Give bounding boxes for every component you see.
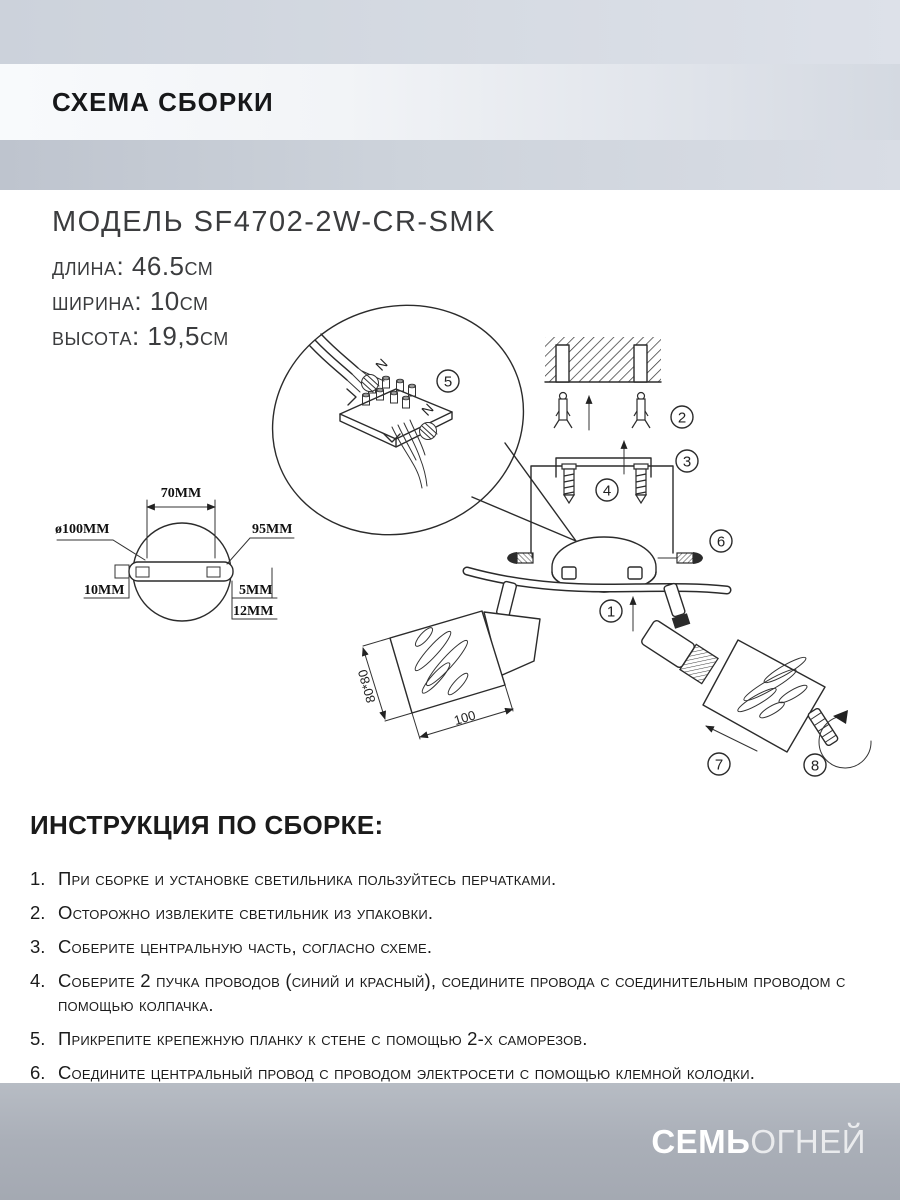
dim-edge-depth: 12MM — [233, 604, 273, 619]
left-shade: 80*80 100 — [355, 611, 540, 739]
instructions-list: 1. При сборке и установке светильника по… — [30, 867, 870, 1085]
assembly-sheet-page: СХЕМА СБОРКИ МОДЕЛЬ SF4702-2W-CR-SMK дли… — [0, 0, 900, 1200]
instruction-item: 2. Осторожно извлеките светильник из упа… — [30, 901, 870, 925]
footer-banner: СЕМЬОГНЕЙ — [0, 1083, 900, 1200]
dim-shade-width: 100 — [452, 707, 477, 728]
svg-text:1: 1 — [607, 603, 615, 620]
wire-cap-icon — [420, 423, 438, 440]
svg-text:3: 3 — [683, 453, 691, 470]
item-number: 5. — [30, 1027, 58, 1051]
bracket-screw-icon — [634, 464, 648, 503]
callout-1: 1 — [600, 600, 622, 622]
instruction-item: 3. Соберите центральную часть, согласно … — [30, 935, 870, 959]
canopy-side-screw-icon — [677, 552, 703, 564]
item-number: 4. — [30, 969, 58, 1017]
item-text: Прикрепите крепежную планку к стене с по… — [58, 1027, 588, 1051]
assembly-diagram: N N 5 70MM ø100MM 95MM — [0, 290, 900, 790]
svg-text:8: 8 — [811, 757, 819, 774]
dim-plate-diameter: ø100MM — [55, 522, 109, 537]
dim-left-offset: 10MM — [84, 583, 124, 598]
mounting-bracket: 4 3 — [531, 441, 698, 553]
item-number: 6. — [30, 1061, 58, 1085]
instruction-item: 6. Соедините центральный провод с провод… — [30, 1061, 870, 1085]
dim-right-offset: 5MM — [239, 583, 272, 598]
page-title: СХЕМА СБОРКИ — [52, 87, 274, 118]
header-band-top — [0, 0, 900, 64]
item-text: Соберите 2 пучка проводов (синий и красн… — [58, 969, 870, 1017]
instruction-item: 1. При сборке и установке светильника по… — [30, 867, 870, 891]
header-band-bottom — [0, 140, 900, 190]
callout-4: 4 — [596, 479, 618, 501]
right-shade — [703, 640, 825, 752]
item-number: 1. — [30, 867, 58, 891]
callout-8: 8 — [804, 754, 826, 776]
wall-anchor-icon — [554, 393, 572, 429]
instructions-heading: ИНСТРУКЦИЯ ПО СБОРКЕ: — [30, 810, 870, 841]
item-text: Соедините центральный провод с проводом … — [58, 1061, 755, 1085]
brand-bold: СЕМЬ — [651, 1123, 750, 1160]
item-number: 2. — [30, 901, 58, 925]
instruction-item: 5. Прикрепите крепежную планку к стене с… — [30, 1027, 870, 1051]
svg-text:6: 6 — [717, 533, 725, 550]
model-spec-length: длина: 46.5см — [52, 249, 496, 284]
wall-anchor-icon — [632, 393, 650, 429]
svg-text:2: 2 — [678, 409, 686, 426]
header-banner: СХЕМА СБОРКИ — [0, 0, 900, 190]
wire-label-n-top: N — [372, 355, 390, 373]
callout-5: 5 — [437, 370, 459, 392]
instruction-item: 4. Соберите 2 пучка проводов (синий и кр… — [30, 969, 870, 1017]
header-title-strip: СХЕМА СБОРКИ — [0, 64, 900, 140]
assembly-diagram-svg: N N 5 70MM ø100MM 95MM — [0, 290, 900, 790]
svg-text:7: 7 — [715, 756, 723, 773]
shade-ring — [807, 708, 839, 747]
rotate-arrow-icon — [833, 710, 848, 724]
bracket-screw-icon — [562, 464, 576, 503]
dim-hole-spacing: 70MM — [161, 486, 201, 501]
canopy-side-screw-icon — [507, 552, 533, 564]
callout-6: 6 — [710, 530, 732, 552]
callout-7: 7 — [708, 753, 730, 775]
right-lamp-head: 7 8 — [640, 619, 871, 776]
svg-text:5: 5 — [444, 373, 452, 390]
svg-text:4: 4 — [603, 482, 611, 499]
item-text: Соберите центральную часть, согласно схе… — [58, 935, 432, 959]
mount-plate-detail: 70MM ø100MM 95MM 10MM 5MM 12MM — [55, 486, 294, 621]
item-text: При сборке и установке светильника польз… — [58, 867, 556, 891]
instructions-section: ИНСТРУКЦИЯ ПО СБОРКЕ: 1. При сборке и ус… — [30, 810, 870, 1095]
model-name: МОДЕЛЬ SF4702-2W-CR-SMK — [52, 206, 496, 239]
callout-3: 3 — [676, 450, 698, 472]
brand-light: ОГНЕЙ — [750, 1123, 866, 1160]
item-text: Осторожно извлеките светильник из упаков… — [58, 901, 433, 925]
brand-logo: СЕМЬОГНЕЙ — [651, 1123, 900, 1161]
wall-section: 2 — [545, 337, 693, 430]
dim-plate-length: 95MM — [252, 522, 292, 537]
item-number: 3. — [30, 935, 58, 959]
callout-2: 2 — [671, 406, 693, 428]
